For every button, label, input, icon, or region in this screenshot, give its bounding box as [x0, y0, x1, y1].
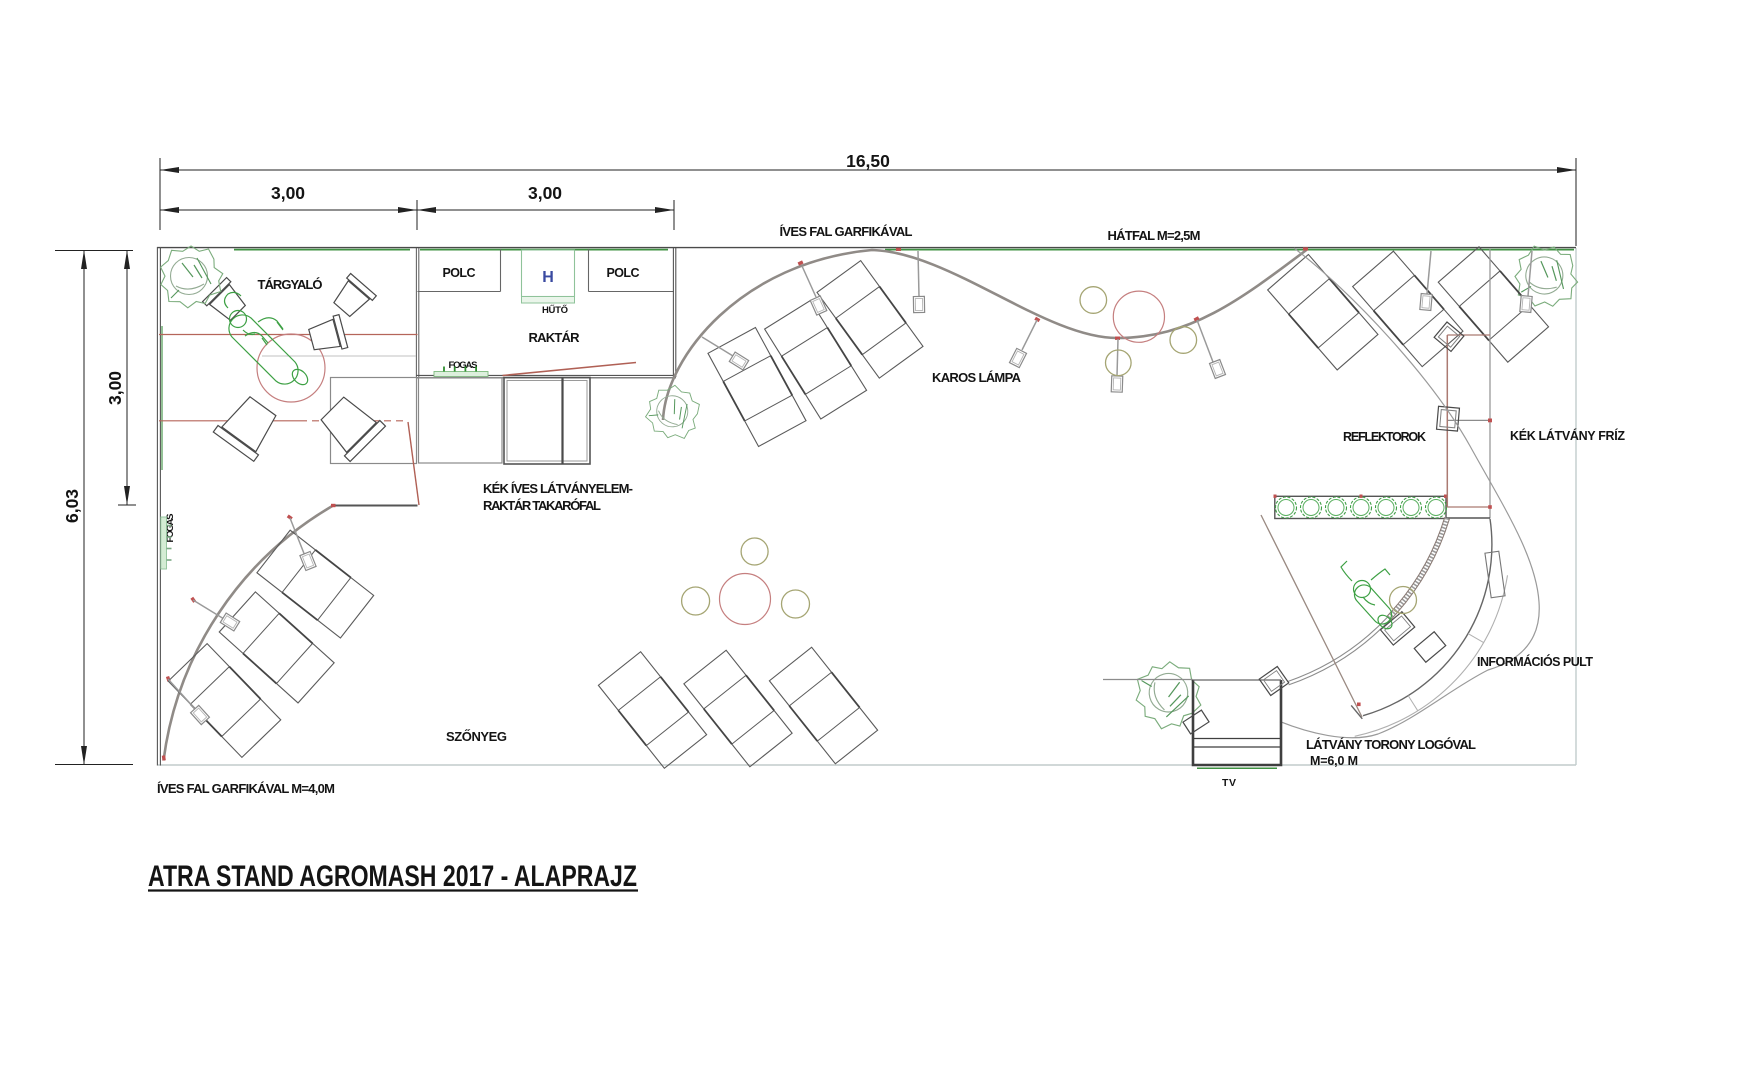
svg-text:HŰTŐ: HŰTŐ: [542, 304, 568, 316]
svg-text:3,00: 3,00: [105, 371, 125, 405]
svg-text:TV: TV: [1222, 777, 1236, 789]
svg-text:KAROS LÁMPA: KAROS LÁMPA: [932, 370, 1022, 385]
svg-text:RAKTÁR TAKARÓFAL: RAKTÁR TAKARÓFAL: [483, 498, 601, 513]
svg-text:6,03: 6,03: [62, 489, 82, 523]
svg-text:3,00: 3,00: [528, 183, 562, 203]
svg-text:KÉK ÍVES LÁTVÁNYELEM-: KÉK ÍVES LÁTVÁNYELEM-: [483, 481, 633, 496]
svg-text:ÍVES FAL GARFIKÁVAL: ÍVES FAL GARFIKÁVAL: [780, 224, 913, 239]
svg-text:RAKTÁR: RAKTÁR: [529, 330, 581, 345]
svg-text:H: H: [542, 269, 554, 286]
svg-text:INFORMÁCIÓS PULT: INFORMÁCIÓS PULT: [1477, 654, 1593, 669]
svg-text:M=6,0 M: M=6,0 M: [1310, 754, 1358, 768]
svg-text:3,00: 3,00: [271, 183, 305, 203]
svg-text:POLC: POLC: [607, 266, 640, 280]
svg-text:LÁTVÁNY TORONY LOGÓVAL: LÁTVÁNY TORONY LOGÓVAL: [1306, 737, 1476, 752]
svg-text:POLC: POLC: [443, 266, 476, 280]
svg-text:16,50: 16,50: [846, 151, 890, 171]
svg-text:KÉK LÁTVÁNY FRÍZ: KÉK LÁTVÁNY FRÍZ: [1510, 428, 1625, 443]
svg-text:ATRA STAND AGROMASH 2017 - ALA: ATRA STAND AGROMASH 2017 - ALAPRAJZ: [148, 860, 637, 893]
svg-text:REFLEKTOROK: REFLEKTOROK: [1343, 430, 1426, 444]
svg-text:FOGAS: FOGAS: [449, 360, 478, 371]
svg-text:HÁTFAL M=2,5M: HÁTFAL M=2,5M: [1108, 228, 1201, 243]
svg-text:TÁRGYALÓ: TÁRGYALÓ: [258, 277, 323, 292]
svg-text:SZŐNYEG: SZŐNYEG: [446, 729, 507, 744]
svg-text:ÍVES FAL GARFIKÁVAL M=4,0M: ÍVES FAL GARFIKÁVAL M=4,0M: [157, 781, 335, 796]
